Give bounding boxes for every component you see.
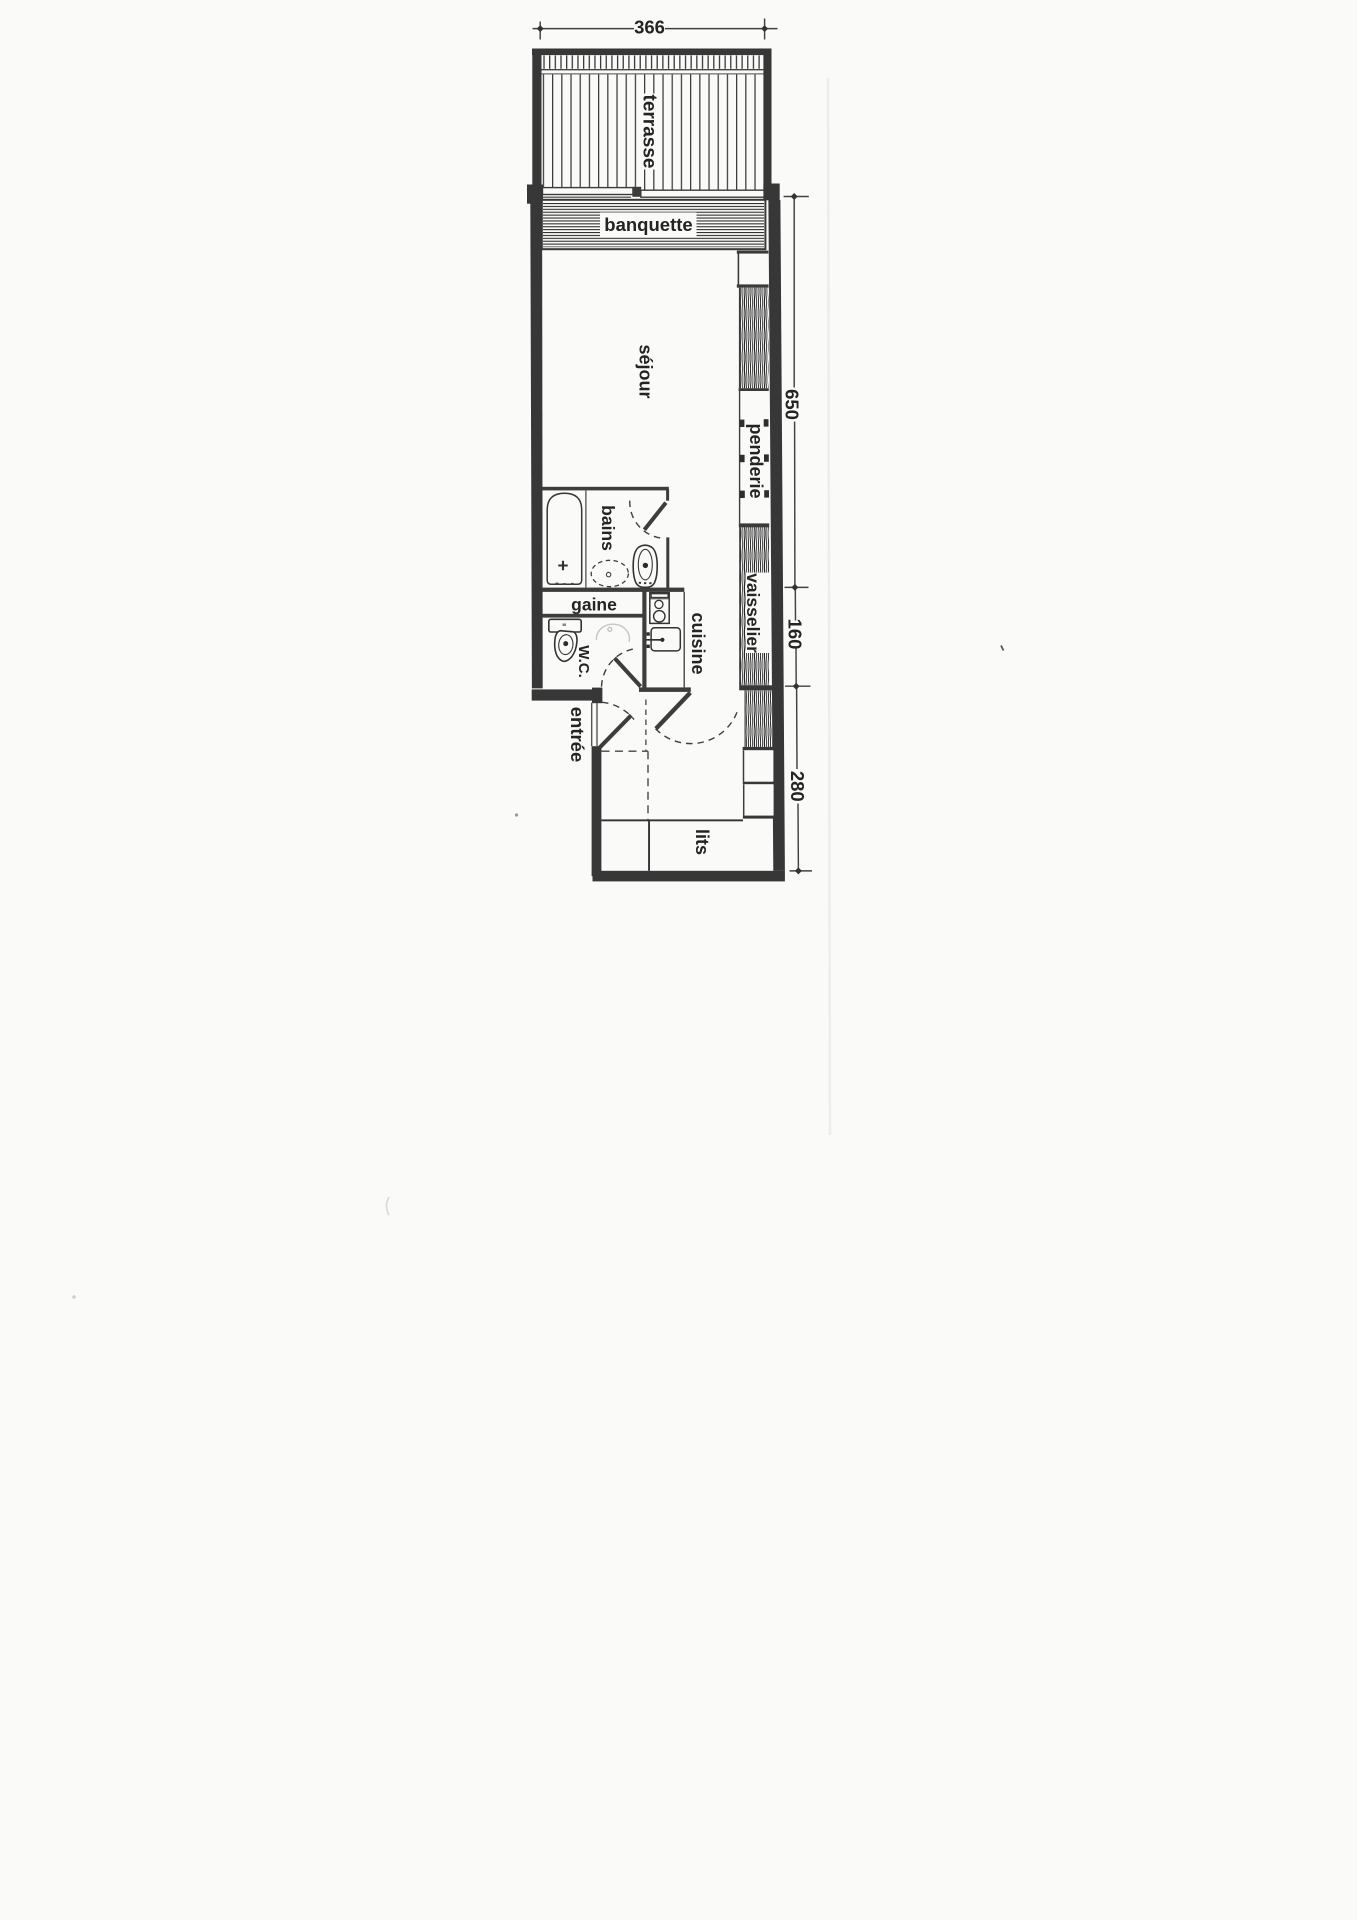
svg-text:entrée: entrée xyxy=(567,707,588,763)
svg-text:W.C.: W.C. xyxy=(575,645,592,678)
svg-text:160: 160 xyxy=(785,619,806,650)
svg-text:cuisine: cuisine xyxy=(688,612,708,674)
svg-text:bains: bains xyxy=(598,505,618,551)
svg-text:366: 366 xyxy=(634,17,665,38)
svg-text:séjour: séjour xyxy=(635,344,655,398)
svg-text:banquette: banquette xyxy=(604,214,692,235)
svg-text:lits: lits xyxy=(692,829,712,855)
svg-text:penderie: penderie xyxy=(746,423,766,498)
svg-text:280: 280 xyxy=(787,771,808,802)
svg-text:gaine: gaine xyxy=(571,595,617,615)
svg-text:terrasse: terrasse xyxy=(639,95,660,169)
svg-text:vaisselier: vaisselier xyxy=(743,573,763,653)
svg-text:650: 650 xyxy=(782,389,803,420)
